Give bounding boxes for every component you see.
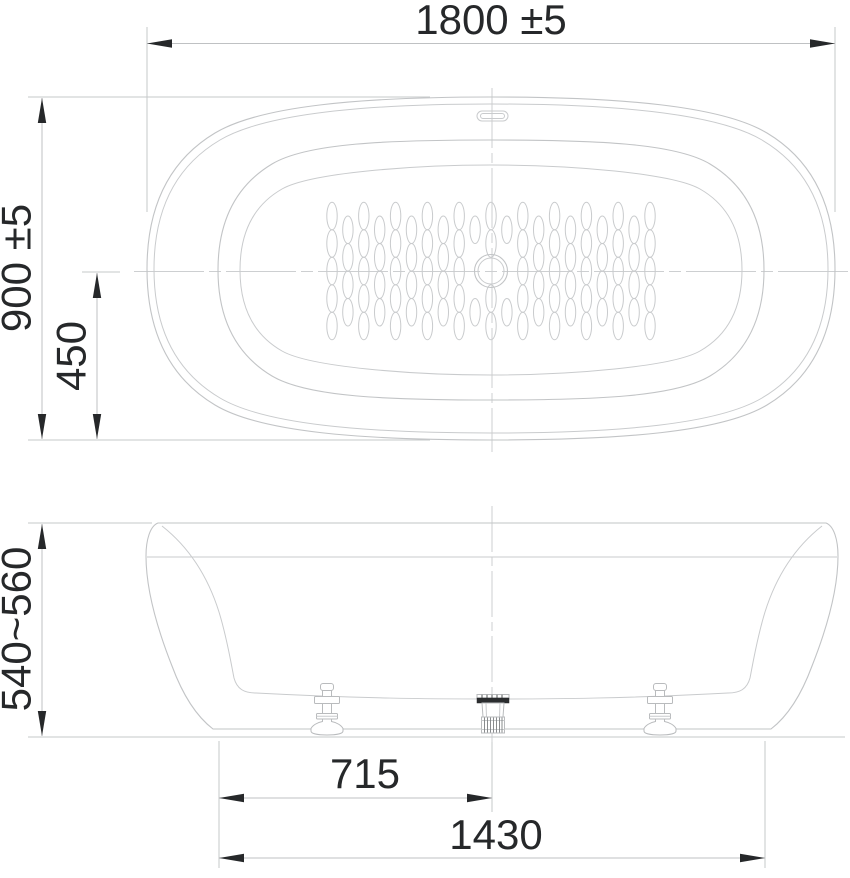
dim-height: 540~560 bbox=[0, 523, 152, 736]
arrow-down-icon bbox=[38, 414, 46, 439]
antislip-dot bbox=[629, 243, 639, 271]
antislip-dot bbox=[565, 298, 575, 326]
antislip-dot bbox=[454, 312, 464, 340]
antislip-dot bbox=[438, 216, 448, 244]
inner-wall-left bbox=[162, 526, 256, 693]
antislip-dot bbox=[597, 298, 607, 326]
antislip-dot bbox=[486, 312, 496, 340]
drain-flange bbox=[477, 698, 509, 703]
antislip-dot bbox=[343, 271, 353, 299]
arrow-up-icon bbox=[38, 524, 46, 549]
antislip-dot bbox=[327, 285, 337, 313]
dim-label-overall-width: 1800 ±5 bbox=[415, 0, 567, 43]
antislip-dot bbox=[454, 202, 464, 230]
antislip-dot bbox=[327, 312, 337, 340]
dim-label-base-length: 1430 bbox=[449, 811, 542, 858]
arrow-up-icon bbox=[38, 98, 46, 123]
antislip-dot bbox=[565, 271, 575, 299]
antislip-dot bbox=[565, 216, 575, 244]
drain-coupling-hatch bbox=[485, 718, 503, 733]
antislip-dot bbox=[406, 216, 416, 244]
antislip-dot bbox=[518, 285, 528, 313]
dimensions: 1800 ±5 900 ±5 450 540~560 bbox=[0, 0, 835, 868]
arrow-right-icon bbox=[740, 854, 765, 862]
antislip-dot bbox=[486, 230, 496, 258]
antislip-dot bbox=[438, 298, 448, 326]
antislip-dot bbox=[470, 216, 480, 244]
antislip-dot bbox=[390, 285, 400, 313]
antislip-dot bbox=[343, 216, 353, 244]
antislip-dot bbox=[375, 298, 385, 326]
antislip-dot bbox=[375, 243, 385, 271]
antislip-dot bbox=[581, 285, 591, 313]
antislip-dot bbox=[486, 285, 496, 313]
antislip-dot bbox=[581, 312, 591, 340]
antislip-dot bbox=[518, 202, 528, 230]
antislip-dot bbox=[549, 230, 559, 258]
basin-upper-edge bbox=[218, 140, 764, 400]
antislip-dot bbox=[422, 230, 432, 258]
antislip-dot bbox=[327, 230, 337, 258]
arrow-left-icon bbox=[219, 854, 244, 862]
antislip-dot bbox=[359, 285, 369, 313]
antislip-dot bbox=[343, 298, 353, 326]
antislip-dot bbox=[406, 298, 416, 326]
antislip-dot bbox=[613, 202, 623, 230]
arrow-right-icon bbox=[467, 794, 492, 802]
antislip-dot bbox=[613, 285, 623, 313]
antislip-dot bbox=[470, 298, 480, 326]
antislip-dot bbox=[629, 298, 639, 326]
antislip-dot bbox=[359, 202, 369, 230]
antislip-dot bbox=[565, 243, 575, 271]
antislip-dot bbox=[629, 271, 639, 299]
arrow-left-icon bbox=[147, 39, 172, 48]
antislip-dot bbox=[422, 202, 432, 230]
dim-label-center-to-edge: 450 bbox=[48, 321, 95, 391]
front-view bbox=[28, 506, 845, 750]
antislip-dot bbox=[502, 216, 512, 244]
antislip-dot bbox=[454, 285, 464, 313]
dim-label-drain-to-base-edge: 715 bbox=[330, 750, 400, 797]
antislip-dot bbox=[597, 243, 607, 271]
top-view bbox=[134, 88, 850, 452]
antislip-dot bbox=[645, 202, 655, 230]
antislip-dot bbox=[406, 243, 416, 271]
foot-left bbox=[311, 684, 343, 736]
antislip-dot bbox=[518, 312, 528, 340]
antislip-dot bbox=[549, 202, 559, 230]
antislip-dot bbox=[343, 243, 353, 271]
antislip-dot bbox=[422, 312, 432, 340]
antislip-dot bbox=[438, 271, 448, 299]
antislip-dot bbox=[645, 312, 655, 340]
antislip-dot bbox=[502, 298, 512, 326]
tub-outer-rim bbox=[147, 97, 835, 440]
antislip-dot bbox=[390, 202, 400, 230]
arrow-right-icon bbox=[810, 39, 835, 48]
antislip-dot bbox=[327, 202, 337, 230]
antislip-dot bbox=[613, 230, 623, 258]
arrow-down-icon bbox=[93, 414, 101, 439]
dim-label-height: 540~560 bbox=[0, 547, 40, 712]
antislip-dot bbox=[534, 216, 544, 244]
drain-coupling bbox=[482, 717, 505, 733]
arrow-down-icon bbox=[38, 711, 46, 736]
antislip-dot bbox=[375, 216, 385, 244]
antislip-dot bbox=[486, 202, 496, 230]
antislip-dot bbox=[390, 312, 400, 340]
arrow-left-icon bbox=[219, 794, 244, 802]
antislip-dot bbox=[645, 285, 655, 313]
inner-wall-right bbox=[728, 526, 822, 693]
drain-body-line bbox=[486, 703, 487, 717]
antislip-dot bbox=[534, 271, 544, 299]
dim-center-to-edge: 450 bbox=[48, 272, 121, 439]
tub-rim-inner-edge bbox=[154, 104, 828, 433]
drain-tailpiece bbox=[477, 695, 509, 734]
antislip-dot bbox=[549, 285, 559, 313]
foot-right bbox=[644, 684, 676, 736]
antislip-dot bbox=[359, 312, 369, 340]
antislip-dot bbox=[629, 216, 639, 244]
drain-body bbox=[482, 703, 504, 717]
arrow-up-icon bbox=[93, 273, 101, 298]
antislip-dot bbox=[359, 230, 369, 258]
antislip-dot bbox=[597, 216, 607, 244]
bathtub-technical-drawing: 1800 ±5 900 ±5 450 540~560 bbox=[0, 0, 850, 878]
antislip-dot bbox=[549, 312, 559, 340]
antislip-dot bbox=[645, 230, 655, 258]
antislip-dot bbox=[534, 298, 544, 326]
drawing-canvas: 1800 ±5 900 ±5 450 540~560 bbox=[0, 0, 850, 878]
antislip-dot bbox=[454, 230, 464, 258]
drain-body-line bbox=[500, 703, 501, 717]
antislip-dot bbox=[597, 271, 607, 299]
antislip-dot bbox=[581, 202, 591, 230]
basin-floor-edge bbox=[240, 165, 742, 375]
antislip-dot bbox=[406, 271, 416, 299]
antislip-dot bbox=[375, 271, 385, 299]
dim-label-overall-depth: 900 ±5 bbox=[0, 204, 40, 332]
antislip-dot bbox=[438, 243, 448, 271]
antislip-dot bbox=[422, 285, 432, 313]
antislip-dot bbox=[390, 230, 400, 258]
antislip-dot bbox=[581, 230, 591, 258]
antislip-dot bbox=[534, 243, 544, 271]
antislip-dot bbox=[518, 230, 528, 258]
antislip-dot bbox=[613, 312, 623, 340]
